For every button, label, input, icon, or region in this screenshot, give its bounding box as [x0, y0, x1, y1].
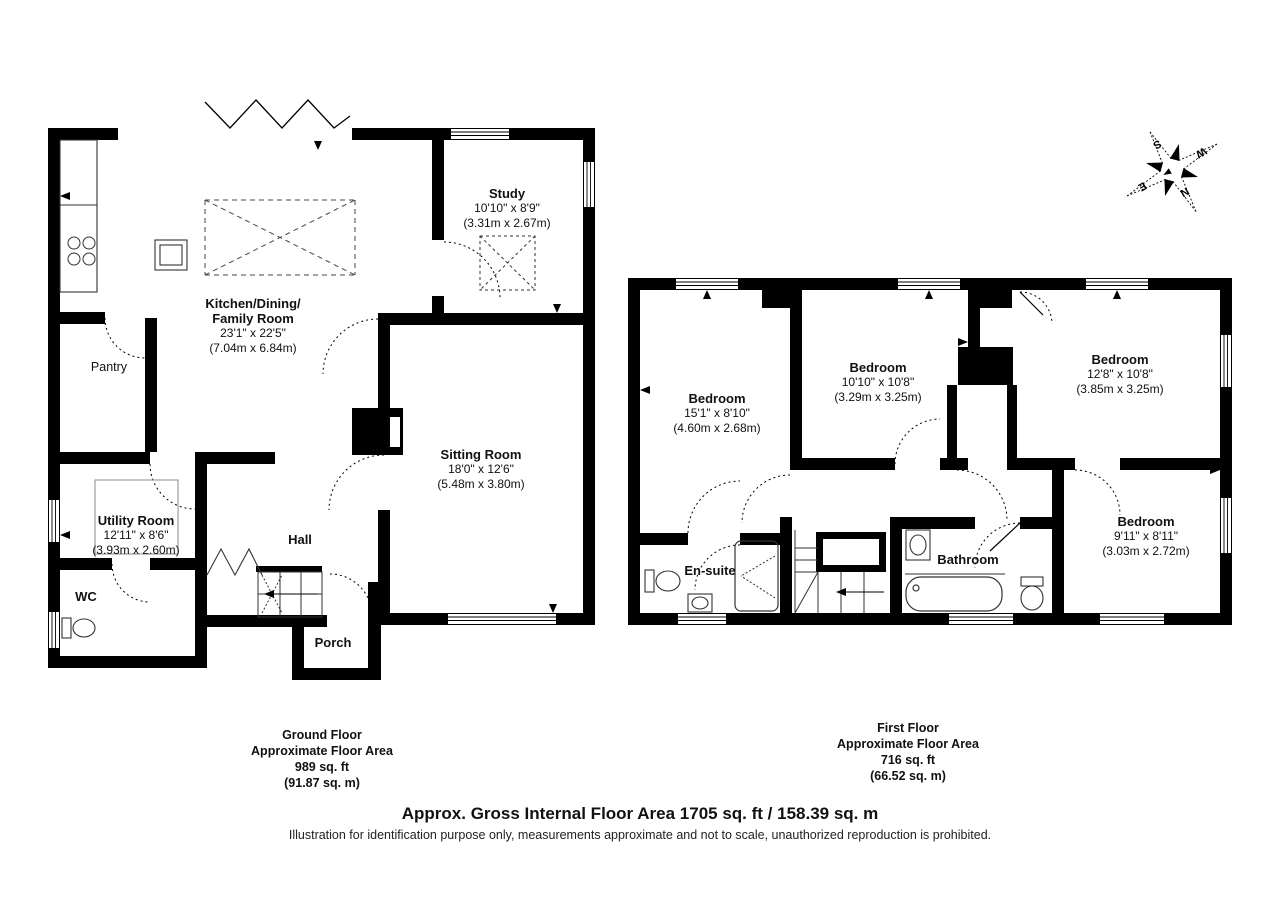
hob-icon	[68, 237, 95, 265]
bedroom-3-dims-ft: 12'8" x 10'8"	[1076, 367, 1163, 382]
study-name: Study	[463, 186, 550, 201]
sitting-room-name: Sitting Room	[437, 447, 524, 462]
shower-icon	[735, 541, 778, 611]
room-label-bedroom-2: Bedroom 10'10" x 10'8" (3.29m x 3.25m)	[834, 360, 921, 405]
bedroom-4-name: Bedroom	[1102, 514, 1189, 529]
sitting-room-dims-m: (5.48m x 3.80m)	[437, 477, 524, 492]
sitting-room-dims-ft: 18'0" x 12'6"	[437, 462, 524, 477]
ground-caption-line3: 989 sq. ft	[251, 759, 393, 775]
kitchen-name: Kitchen/Dining/	[205, 296, 300, 311]
hall-name: Hall	[288, 532, 312, 547]
bedroom-3-dims-m: (3.85m x 3.25m)	[1076, 382, 1163, 397]
room-label-sitting-room: Sitting Room 18'0" x 12'6" (5.48m x 3.80…	[437, 447, 524, 492]
bathtub-icon	[905, 574, 1005, 611]
disclaimer-text: Illustration for identification purpose …	[289, 828, 991, 842]
ceiling-hatch	[205, 200, 355, 275]
room-label-bathroom: Bathroom	[937, 552, 998, 567]
room-label-ensuite: En-suite	[684, 563, 735, 578]
bedroom-3-name: Bedroom	[1076, 352, 1163, 367]
first-caption-line2: Approximate Floor Area	[837, 736, 979, 752]
room-label-porch: Porch	[315, 635, 352, 650]
kitchen-dims-m: (7.04m x 6.84m)	[205, 341, 300, 356]
bifold-door	[207, 549, 262, 575]
room-label-bedroom-3: Bedroom 12'8" x 10'8" (3.85m x 3.25m)	[1076, 352, 1163, 397]
compass-south-label: S	[1151, 137, 1163, 151]
bedroom-2-dims-ft: 10'10" x 10'8"	[834, 375, 921, 390]
first-caption-line4: (66.52 sq. m)	[837, 768, 979, 784]
ground-caption-line2: Approximate Floor Area	[251, 743, 393, 759]
bedroom-2-name: Bedroom	[834, 360, 921, 375]
ensuite-sink-icon	[688, 594, 712, 612]
compass-rose: N S E W	[1105, 106, 1241, 238]
kitchen-counter	[60, 140, 97, 292]
room-label-study: Study 10'10" x 8'9" (3.31m x 2.67m)	[463, 186, 550, 231]
compass-west-label: W	[1193, 144, 1209, 160]
ensuite-toilet-icon	[645, 570, 680, 592]
floorplan-page: N S E W Kitchen/Dining/ Family Room 23'1…	[0, 0, 1280, 904]
study-dims-ft: 10'10" x 8'9"	[463, 201, 550, 216]
bathroom-name: Bathroom	[937, 552, 998, 567]
gross-area-title: Approx. Gross Internal Floor Area 1705 s…	[402, 804, 878, 824]
room-label-bedroom-1: Bedroom 15'1" x 8'10" (4.60m x 2.68m)	[673, 391, 760, 436]
ground-caption-line4: (91.87 sq. m)	[251, 775, 393, 791]
kitchen-name2: Family Room	[205, 311, 300, 326]
bedroom-4-dims-ft: 9'11" x 8'11"	[1102, 529, 1189, 544]
bedroom-1-name: Bedroom	[673, 391, 760, 406]
utility-room-dims-ft: 12'11" x 8'6"	[92, 528, 179, 543]
room-label-hall: Hall	[288, 532, 312, 547]
ground-caption-line1: Ground Floor	[251, 727, 393, 743]
bedroom-1-dims-ft: 15'1" x 8'10"	[673, 406, 760, 421]
fireplace-inset	[390, 417, 400, 447]
utility-room-name: Utility Room	[92, 513, 179, 528]
first-floor-caption: First Floor Approximate Floor Area 716 s…	[837, 720, 979, 784]
bedroom-4-dims-m: (3.03m x 2.72m)	[1102, 544, 1189, 559]
wc-name: WC	[75, 589, 97, 604]
porch-name: Porch	[315, 635, 352, 650]
bedroom-2-dims-m: (3.29m x 3.25m)	[834, 390, 921, 405]
wc-toilet-icon	[62, 618, 95, 638]
bathroom-sink-icon	[906, 530, 930, 560]
ensuite-name: En-suite	[684, 563, 735, 578]
sink-icon	[155, 240, 187, 270]
room-label-utility-room: Utility Room 12'11" x 8'6" (3.93m x 2.60…	[92, 513, 179, 558]
compass-north-label: N	[1178, 184, 1191, 198]
ground-stairs	[258, 572, 322, 617]
ground-floor-caption: Ground Floor Approximate Floor Area 989 …	[251, 727, 393, 791]
first-caption-line1: First Floor	[837, 720, 979, 736]
study-dims-m: (3.31m x 2.67m)	[463, 216, 550, 231]
room-label-kitchen: Kitchen/Dining/ Family Room 23'1" x 22'5…	[205, 296, 300, 356]
kitchen-dims-ft: 23'1" x 22'5"	[205, 326, 300, 341]
bedroom-1-dims-m: (4.60m x 2.68m)	[673, 421, 760, 436]
utility-room-dims-m: (3.93m x 2.60m)	[92, 543, 179, 558]
room-label-bedroom-4: Bedroom 9'11" x 8'11" (3.03m x 2.72m)	[1102, 514, 1189, 559]
bathroom-toilet-icon	[1021, 577, 1043, 610]
room-label-wc: WC	[75, 589, 97, 604]
floorplan-drawing: N S E W	[0, 0, 1280, 904]
room-label-pantry: Pantry	[91, 360, 127, 375]
break-line-zigzag	[205, 100, 350, 128]
first-caption-line3: 716 sq. ft	[837, 752, 979, 768]
pantry-name: Pantry	[91, 360, 127, 375]
